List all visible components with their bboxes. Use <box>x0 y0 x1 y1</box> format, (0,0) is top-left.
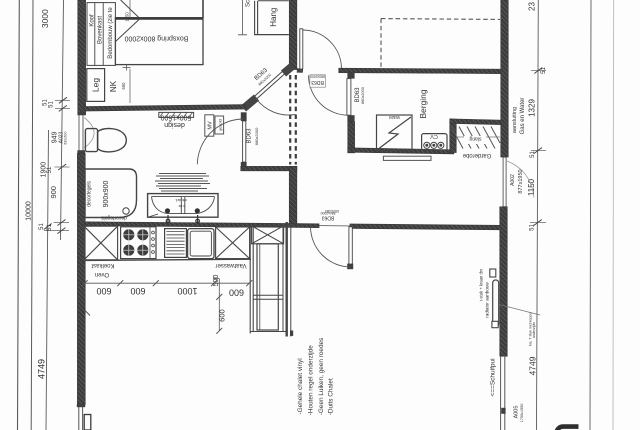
svg-text:3000: 3000 <box>40 9 50 28</box>
svg-text:slang: slang <box>469 135 481 141</box>
svg-text:880x2000: 880x2000 <box>254 127 259 145</box>
svg-text:-Duits Chalet: -Duits Chalet <box>328 378 335 415</box>
svg-text:4749: 4749 <box>36 359 46 379</box>
svg-text:Garderobe: Garderobe <box>462 152 491 158</box>
svg-text:51: 51 <box>530 151 536 158</box>
svg-text:NK: NK <box>109 80 118 92</box>
svg-text:900: 900 <box>49 186 58 199</box>
svg-text:BD63: BD63 <box>311 79 324 85</box>
svg-text:design: design <box>164 121 185 128</box>
svg-text:Boxspring 800x2000: Boxspring 800x2000 <box>124 34 188 41</box>
svg-text:-Houten regel onderzijde: -Houten regel onderzijde <box>308 345 315 415</box>
svg-text:Koelkast: Koelkast <box>91 262 114 268</box>
svg-text:1150: 1150 <box>527 178 536 196</box>
svg-text:t-stuk + kraan tbv: t-stuk + kraan tbv <box>479 268 484 301</box>
svg-text:-Gehele chalet vinyl: -Gehele chalet vinyl <box>297 358 304 414</box>
svg-text:1000: 1000 <box>177 286 197 296</box>
svg-text:4749: 4749 <box>528 356 538 375</box>
svg-text:Vaatwasser: Vaatwasser <box>216 262 247 268</box>
svg-text:51: 51 <box>47 166 53 173</box>
svg-text:650: 650 <box>121 82 126 90</box>
svg-text:630x600: 630x600 <box>64 131 68 144</box>
svg-text:aansluiting: aansluiting <box>512 107 518 133</box>
svg-text:500x1500: 500x1500 <box>161 114 192 121</box>
svg-text:A005: A005 <box>514 406 520 419</box>
svg-text:600: 600 <box>229 287 244 297</box>
svg-text:Berging: Berging <box>418 89 428 119</box>
svg-text:51: 51 <box>47 224 53 231</box>
svg-text:decortegels: decortegels <box>87 181 93 207</box>
svg-text:51: 51 <box>541 67 547 74</box>
svg-text:1750x1950: 1750x1950 <box>520 404 524 423</box>
svg-text:Bovenkast: Bovenkast <box>98 16 104 44</box>
svg-text:51: 51 <box>49 101 55 108</box>
svg-text:51: 51 <box>530 224 536 231</box>
svg-text:W&M: W&M <box>389 115 400 120</box>
svg-text:23: 23 <box>528 2 537 11</box>
svg-text:880x2000: 880x2000 <box>310 75 325 79</box>
svg-text:gezold: gezold <box>217 119 222 131</box>
svg-text:BD63: BD63 <box>322 214 335 220</box>
svg-text:600: 600 <box>96 286 111 296</box>
svg-text:MV: MV <box>207 121 213 130</box>
svg-text:Leg: Leg <box>91 78 101 92</box>
svg-text:radiator aanbouw: radiator aanbouw <box>485 282 490 318</box>
svg-text:Koof: Koof <box>89 14 95 27</box>
svg-text:BD63: BD63 <box>246 128 252 144</box>
svg-text:wb dz1: wb dz1 <box>175 198 186 202</box>
svg-text:Bedombouw (zie te: Bedombouw (zie te <box>108 7 114 59</box>
svg-text:500: 500 <box>213 275 220 287</box>
svg-text:10000: 10000 <box>25 201 32 221</box>
svg-text:1329: 1329 <box>528 99 537 117</box>
svg-text:600: 600 <box>130 286 145 296</box>
svg-text:600: 600 <box>218 309 227 322</box>
svg-text:anderzijds: anderzijds <box>532 322 536 338</box>
svg-text:CV: CV <box>430 133 438 139</box>
svg-text:Gas en Water: Gas en Water <box>520 98 526 135</box>
svg-text:51: 51 <box>39 223 45 230</box>
svg-text:b dz: b dz <box>178 204 185 208</box>
svg-text:<==Schuifpui: <==Schuifpui <box>490 358 497 396</box>
svg-text:-Geen Luiken, geen roedes: -Geen Luiken, geen roedes <box>318 338 325 415</box>
svg-text:decortegels: decortegels <box>101 215 127 221</box>
svg-text:900x900: 900x900 <box>103 180 110 207</box>
svg-text:03051089: 03051089 <box>325 209 339 213</box>
svg-text:877x1950: 877x1950 <box>518 169 524 193</box>
svg-text:880x2000: 880x2000 <box>361 87 365 104</box>
svg-text:Hang: Hang <box>269 8 278 27</box>
svg-text:Oven: Oven <box>95 271 109 277</box>
svg-text:Sc: Sc <box>246 0 252 7</box>
svg-text:1750: 1750 <box>125 12 130 22</box>
svg-text:A002: A002 <box>510 174 516 186</box>
